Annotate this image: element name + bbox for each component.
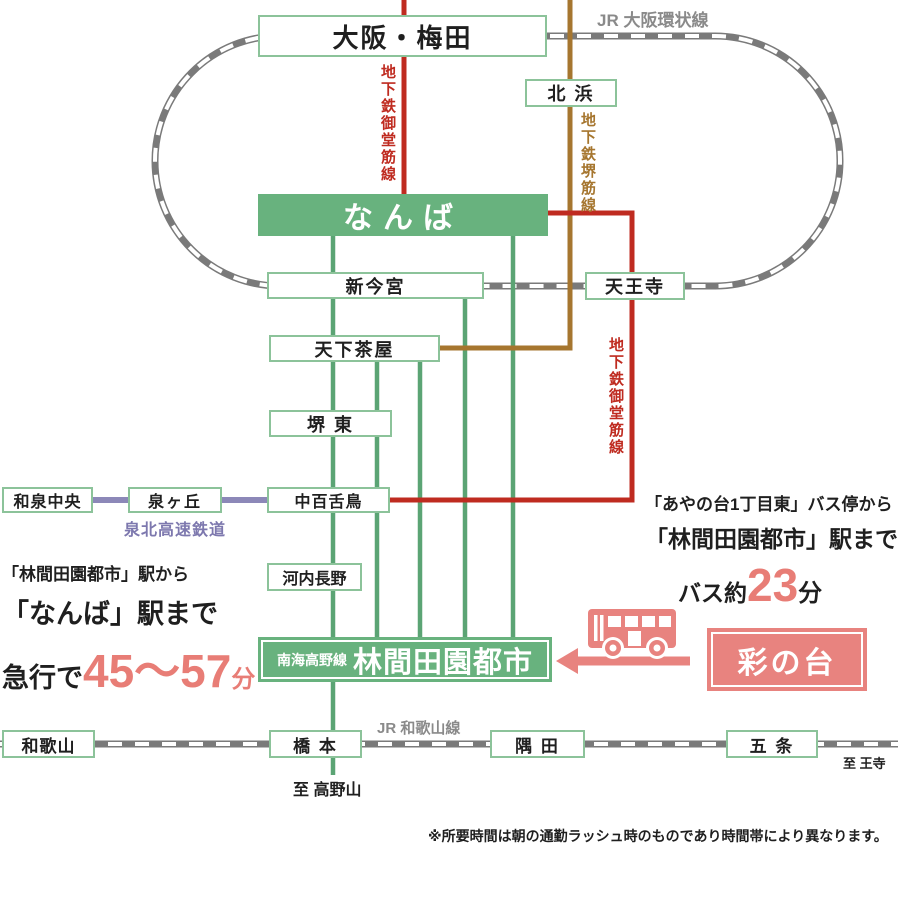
midosuji-line-label-right: 地下鉄御堂筋線 xyxy=(605,337,626,456)
bus-time-unit: 分 xyxy=(798,580,822,607)
bus-time-line2: 「林間田園都市」駅まで xyxy=(645,520,898,554)
jr-loop-line-label: JR 大阪環状線 xyxy=(597,6,708,31)
station-gojo: 五 条 xyxy=(726,730,818,758)
sakaisuji-line-label: 地下鉄堺筋線 xyxy=(577,112,598,214)
station-izumigaoka: 泉ヶ丘 xyxy=(128,487,222,513)
station-rinkan-denentoshi: 南海高野線 林間田園都市 xyxy=(258,637,552,682)
station-osaka-umeda: 大阪・梅田 xyxy=(258,15,547,57)
to-koyasan-label: 至 高野山 xyxy=(293,776,361,800)
station-namba: なんば xyxy=(258,194,548,236)
rail-time-line1: 「林間田園都市」駅から xyxy=(2,560,255,585)
station-wakayama: 和歌山 xyxy=(2,730,95,758)
station-kawachinagano: 河内長野 xyxy=(267,563,362,591)
station-sainodai: 彩の台 xyxy=(707,628,867,691)
station-kitahama: 北 浜 xyxy=(525,79,617,107)
semboku-line-label: 泉北高速鉄道 xyxy=(124,516,226,540)
to-oji-label: 至 王寺 xyxy=(843,753,886,772)
rail-lines-layer xyxy=(0,0,900,900)
rail-time-unit: 分 xyxy=(231,666,255,693)
bus-time-prefix: バス約 xyxy=(678,580,747,606)
rail-time-prefix: 急行で xyxy=(2,663,83,693)
station-nakamozu: 中百舌鳥 xyxy=(267,487,390,513)
bus-time-value: 23 xyxy=(747,559,798,611)
bus-time-info: 「あやの台1丁目東」バス停から 「林間田園都市」駅まで バス約23分 xyxy=(645,490,898,612)
rinkan-line-prefix: 南海高野線 xyxy=(277,650,347,670)
bus-icon xyxy=(588,609,676,659)
station-izumichuo: 和泉中央 xyxy=(2,487,93,513)
station-hashimoto: 橋 本 xyxy=(269,730,362,758)
jr-wakayama-line-label: JR 和歌山線 xyxy=(377,717,460,738)
route-map: 大阪・梅田 北 浜 なんば 新今宮 天王寺 天下茶屋 堺 東 和泉中央 泉ヶ丘 … xyxy=(0,0,900,900)
rail-time-value: 45〜57 xyxy=(83,645,231,697)
station-tennoji: 天王寺 xyxy=(585,272,685,300)
rinkan-name: 林間田園都市 xyxy=(353,639,533,681)
bus-time-line1: 「あやの台1丁目東」バス停から xyxy=(645,490,898,515)
station-suda: 隅 田 xyxy=(490,730,585,758)
rail-time-line2: 「なんば」駅まで xyxy=(2,592,255,631)
midosuji-line-label-top: 地下鉄御堂筋線 xyxy=(377,64,398,183)
footnote: ※所要時間は朝の通勤ラッシュ時のものであり時間帯により異なります。 xyxy=(428,826,888,846)
station-tengachaya: 天下茶屋 xyxy=(269,335,440,362)
jr-osaka-loop-line xyxy=(155,36,840,286)
rail-time-info: 「林間田園都市」駅から 「なんば」駅まで 急行で45〜57分 xyxy=(2,560,255,701)
station-shinimamiya: 新今宮 xyxy=(267,272,484,299)
station-sakaihigashi: 堺 東 xyxy=(269,410,392,437)
